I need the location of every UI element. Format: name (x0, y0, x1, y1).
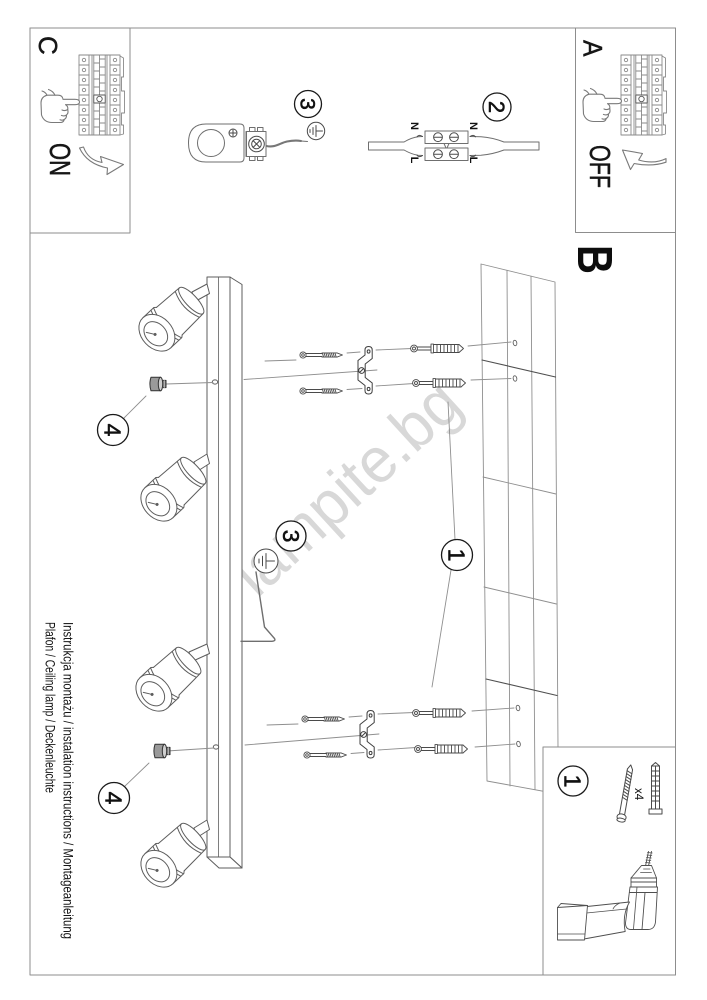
svg-text:L: L (467, 157, 479, 164)
svg-text:4: 4 (101, 792, 127, 805)
svg-text:N: N (408, 122, 420, 130)
svg-text:C: C (33, 36, 63, 55)
svg-text:OFF: OFF (583, 145, 615, 188)
svg-text:3: 3 (296, 98, 319, 110)
svg-text:x4: x4 (632, 788, 644, 801)
svg-text:Instrukcja montażu / instalati: Instrukcja montażu / instalation instruc… (61, 622, 76, 939)
svg-text:L: L (408, 157, 420, 164)
svg-text:1: 1 (560, 775, 586, 788)
svg-text:1: 1 (444, 549, 470, 562)
svg-text:ON: ON (43, 143, 75, 176)
svg-text:A: A (578, 40, 608, 57)
svg-text:N: N (467, 122, 479, 130)
svg-text:4: 4 (100, 424, 126, 437)
svg-text:B: B (567, 245, 621, 274)
svg-text:3: 3 (278, 530, 304, 543)
svg-text:2: 2 (484, 101, 509, 113)
svg-text:Plafon / Ceiling lamp / Decken: Plafon / Ceiling lamp / Deckenleuchte (43, 622, 58, 793)
